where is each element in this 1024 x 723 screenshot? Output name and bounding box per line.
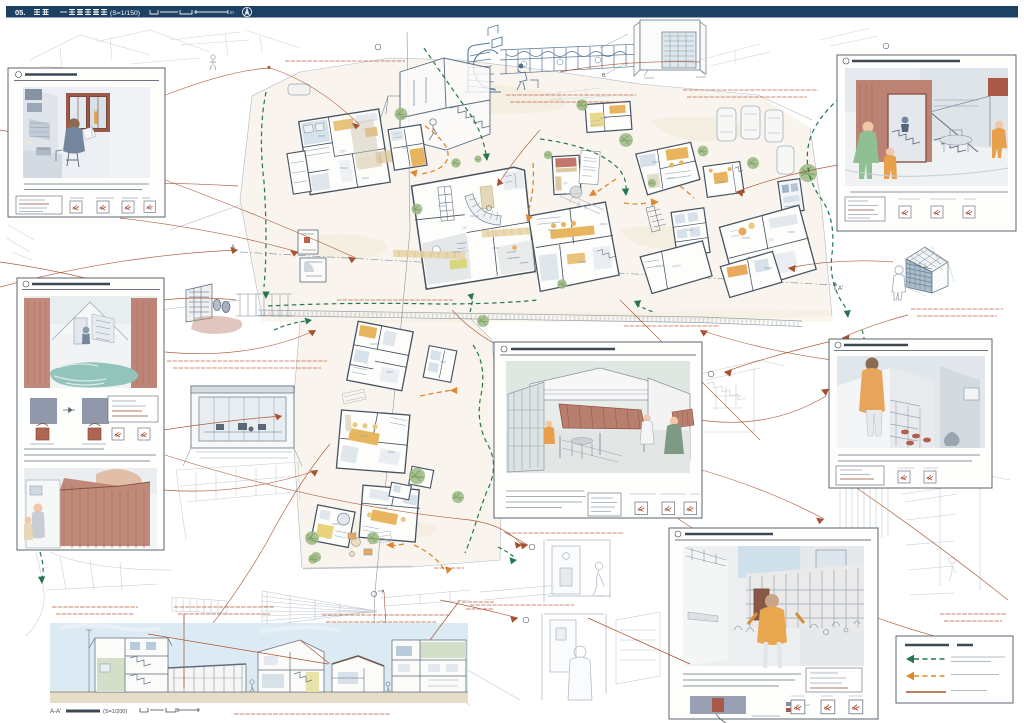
svg-text:(S=1/150): (S=1/150) xyxy=(110,10,140,17)
svg-text:05.: 05. xyxy=(15,8,25,17)
svg-text:□□: □□ xyxy=(563,181,567,185)
svg-text:A-A': A-A' xyxy=(50,709,61,715)
svg-text:B: B xyxy=(602,73,606,79)
svg-text:(S=1/200): (S=1/200) xyxy=(103,709,127,715)
svg-text:m: m xyxy=(230,10,234,15)
svg-text:A': A' xyxy=(838,286,843,292)
